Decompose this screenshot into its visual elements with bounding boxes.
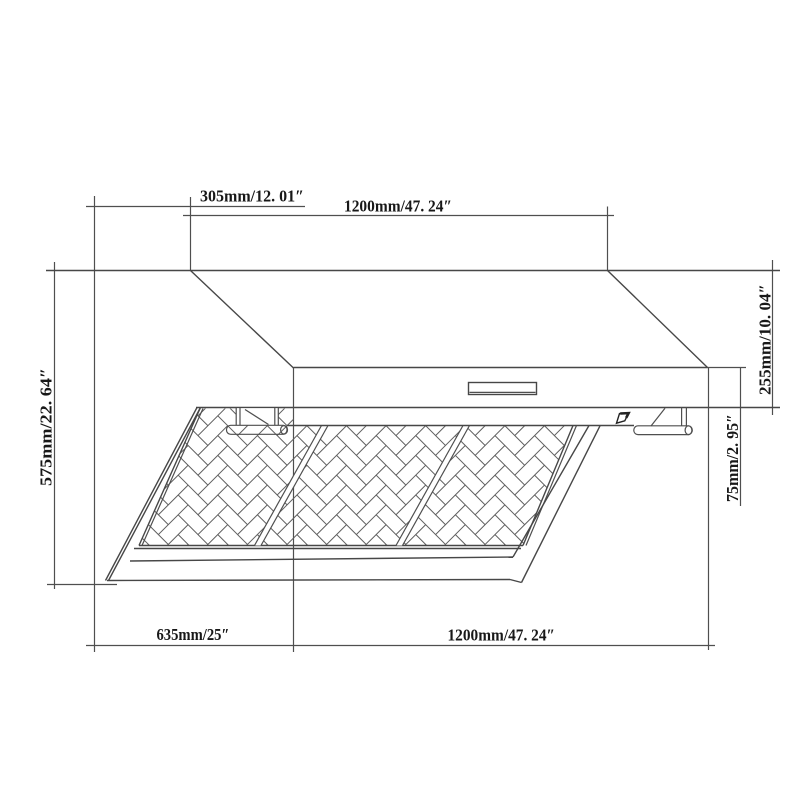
svg-text:305mm/12. 01″: 305mm/12. 01″ xyxy=(200,187,304,206)
svg-text:255mm/10. 04″: 255mm/10. 04″ xyxy=(756,284,775,395)
svg-text:75mm/2. 95″: 75mm/2. 95″ xyxy=(723,414,742,502)
svg-text:635mm/25″: 635mm/25″ xyxy=(157,625,230,644)
svg-text:1200mm/47. 24″: 1200mm/47. 24″ xyxy=(344,197,452,216)
svg-text:575mm/22. 64″: 575mm/22. 64″ xyxy=(37,368,56,486)
svg-text:1200mm/47. 24″: 1200mm/47. 24″ xyxy=(448,626,556,645)
